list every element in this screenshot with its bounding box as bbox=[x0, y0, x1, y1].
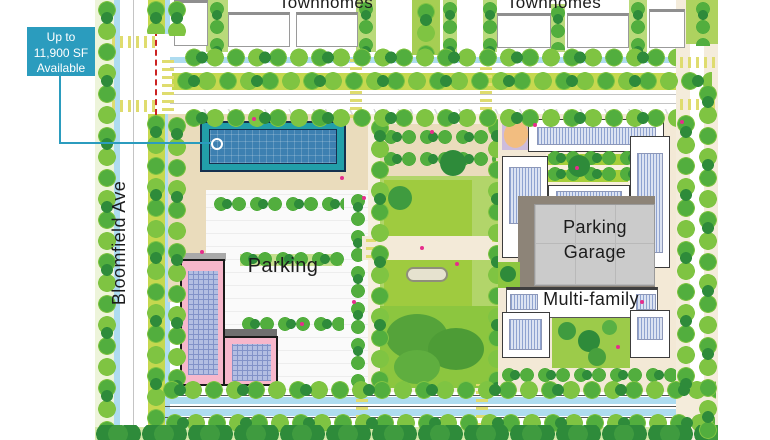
tree-row bbox=[184, 108, 676, 128]
label-bloomfield-ave: Bloomfield Ave bbox=[109, 148, 131, 338]
tree-row bbox=[146, 0, 166, 34]
tree-row bbox=[166, 116, 188, 390]
accent-dot bbox=[455, 262, 459, 266]
callout-leader-vertical bbox=[59, 76, 61, 144]
retail-building-roof bbox=[209, 129, 337, 164]
tree bbox=[588, 348, 606, 366]
callout-marker-icon[interactable] bbox=[211, 138, 223, 150]
tree bbox=[558, 322, 576, 340]
accent-dot bbox=[362, 196, 366, 200]
tree bbox=[440, 150, 466, 176]
park-pavilion bbox=[406, 267, 448, 282]
tree-row bbox=[166, 0, 188, 36]
tree-row bbox=[629, 0, 647, 52]
tree-row bbox=[348, 192, 368, 390]
tree-row bbox=[443, 0, 457, 52]
accent-dot bbox=[352, 300, 356, 304]
crosswalk bbox=[162, 56, 174, 111]
roof-panels bbox=[509, 319, 542, 350]
tree bbox=[568, 155, 590, 177]
crosswalk bbox=[112, 36, 158, 48]
label-townhomes-west: Townhomes bbox=[266, 0, 386, 13]
crosswalk bbox=[680, 57, 716, 68]
tree bbox=[388, 186, 412, 210]
label-multi-family: Multi-family bbox=[531, 289, 651, 310]
tree-row bbox=[212, 194, 344, 214]
label-townhomes-east: Townhomes bbox=[494, 0, 614, 13]
tree-row bbox=[95, 425, 718, 440]
roof-grid bbox=[188, 271, 218, 375]
townhome-building bbox=[649, 9, 685, 48]
label-parking-garage-line1: Parking bbox=[535, 215, 655, 240]
callout-leader-horizontal bbox=[59, 142, 212, 144]
tree-row bbox=[676, 114, 696, 388]
tree-row bbox=[692, 0, 714, 46]
tree bbox=[500, 266, 516, 282]
label-parking-garage: Parking Garage bbox=[535, 215, 655, 265]
roof-grid bbox=[232, 344, 271, 381]
lane-line bbox=[165, 406, 715, 407]
label-parking-garage-line2: Garage bbox=[535, 240, 655, 265]
tree-row bbox=[206, 0, 228, 52]
accent-dot bbox=[252, 117, 256, 121]
site-plan-map: Townhomes Townhomes Parking Parking Gara… bbox=[0, 0, 770, 440]
tree-row bbox=[184, 47, 676, 68]
accent-dot bbox=[680, 120, 684, 124]
availability-callout[interactable]: Up to 11,900 SF Available bbox=[27, 27, 95, 76]
lane-line bbox=[170, 103, 718, 104]
townhome-building bbox=[228, 12, 290, 47]
label-parking: Parking bbox=[241, 255, 325, 278]
accent-dot bbox=[340, 176, 344, 180]
accent-dot bbox=[533, 123, 537, 127]
tree bbox=[602, 320, 617, 335]
crosswalk bbox=[112, 100, 158, 112]
accent-dot bbox=[420, 246, 424, 250]
townhome-building bbox=[296, 12, 358, 47]
townhome-building bbox=[567, 13, 629, 48]
accent-dot bbox=[300, 322, 304, 326]
lane-line bbox=[133, 0, 134, 440]
tree-row bbox=[382, 150, 496, 168]
accent-dot bbox=[200, 250, 204, 254]
townhome-building bbox=[497, 13, 551, 48]
tree-row bbox=[176, 71, 712, 91]
accent-dot bbox=[430, 130, 434, 134]
tree-row bbox=[698, 84, 718, 440]
tree-row bbox=[370, 118, 390, 388]
garden-planting bbox=[394, 350, 440, 384]
lane-line bbox=[170, 94, 718, 95]
tree-row bbox=[162, 380, 716, 400]
tree-row bbox=[382, 128, 496, 146]
roof-panels bbox=[637, 317, 663, 340]
accent-dot bbox=[575, 166, 579, 170]
callout-line2: 11,900 SF bbox=[27, 46, 95, 62]
callout-line3: Available bbox=[27, 61, 95, 77]
accent-dot bbox=[616, 345, 620, 349]
callout-line1: Up to bbox=[27, 30, 95, 46]
property-line bbox=[155, 30, 157, 115]
